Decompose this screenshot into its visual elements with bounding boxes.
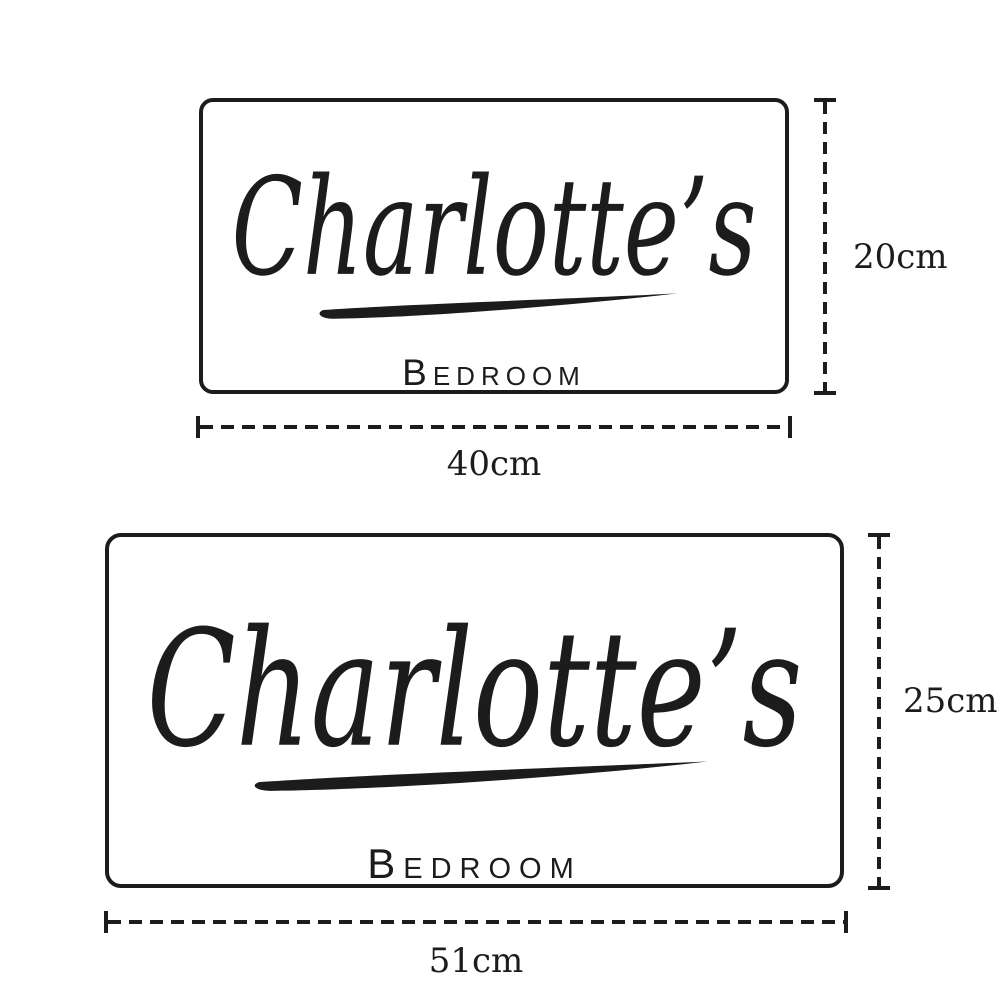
height-label-large: 25cm	[903, 684, 998, 718]
sign-name-script: Charlotte’s	[147, 597, 803, 784]
sign-artwork: Charlotte’s	[203, 102, 785, 390]
dashed-line-vertical	[823, 102, 827, 391]
dashed-line-horizontal	[108, 920, 844, 924]
width-measure-large	[104, 910, 848, 934]
sign-large: Charlotte’s Bedroom	[105, 533, 844, 888]
room-label: Bedroom	[203, 354, 785, 391]
measure-cap-bottom	[868, 886, 890, 890]
height-label-small: 20cm	[853, 240, 948, 274]
measure-cap-right	[788, 416, 792, 438]
width-measure-small	[196, 415, 792, 439]
width-label-small: 40cm	[197, 447, 791, 481]
height-measure-large	[867, 533, 891, 890]
product-dimension-diagram: Charlotte’s Bedroom 20cm 40cm Charlotte’…	[0, 0, 1000, 1000]
measure-cap-right	[844, 911, 848, 933]
height-measure-small	[813, 98, 837, 395]
room-label: Bedroom	[109, 843, 840, 885]
dashed-line-vertical	[877, 537, 881, 886]
dashed-line-horizontal	[200, 425, 788, 429]
sign-artwork: Charlotte’s	[109, 537, 840, 884]
sign-name-script: Charlotte’s	[232, 148, 757, 305]
width-label-large: 51cm	[105, 944, 847, 978]
sign-small: Charlotte’s Bedroom	[199, 98, 789, 394]
measure-cap-bottom	[814, 391, 836, 395]
